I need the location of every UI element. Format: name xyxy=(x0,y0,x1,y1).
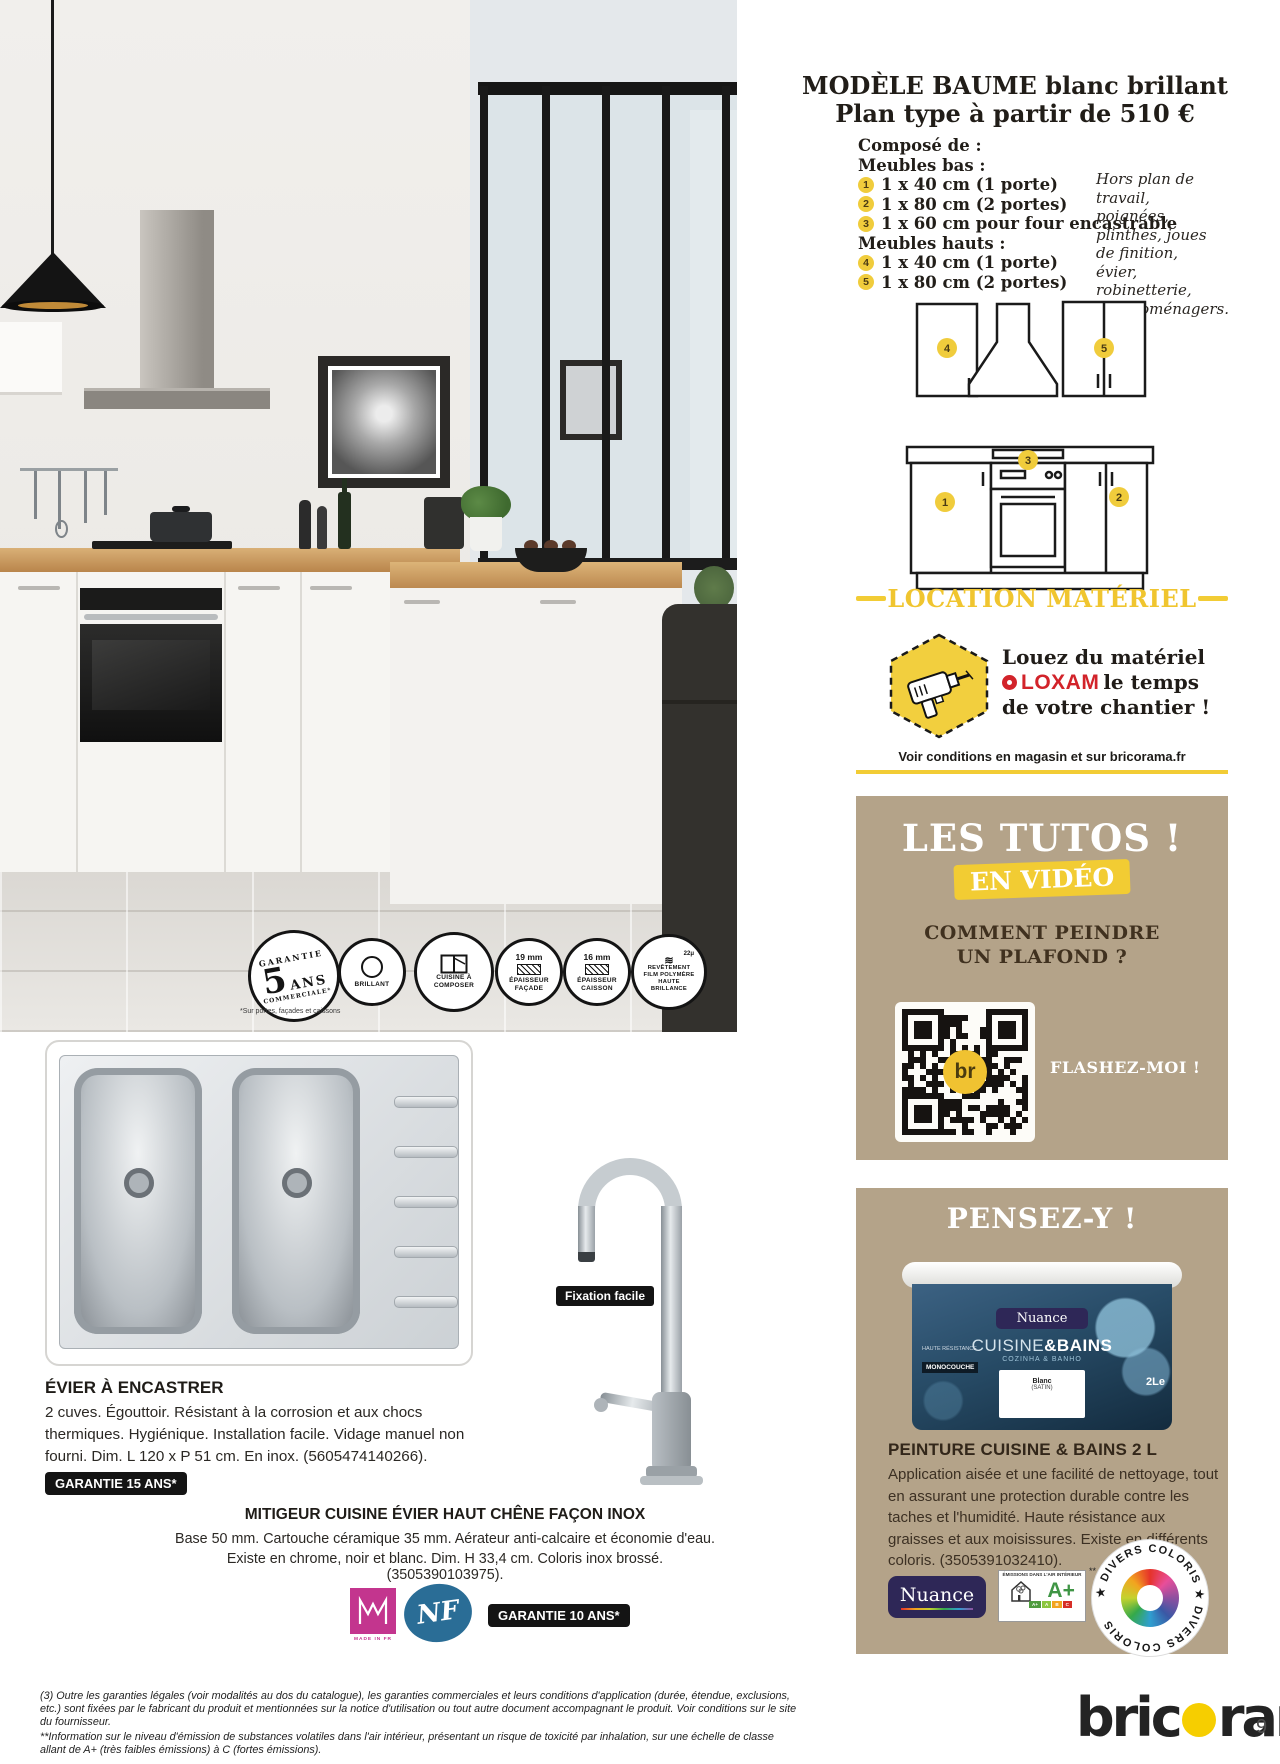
sink-drain xyxy=(282,1168,312,1198)
glass-partition-post xyxy=(542,86,550,568)
catalog-page: GARANTIE 5 ANS COMMERCIALE* BRILLANT CUI… xyxy=(0,0,1280,1764)
pensez-heading: PENSEZ-Y ! xyxy=(856,1202,1228,1235)
badge-revetement-label: REVÊTEMENT FILM POLYMÈRE HAUTE BRILLANCE xyxy=(643,965,695,993)
bucket-volume: 2Le xyxy=(1146,1376,1165,1388)
diagram-number-5: 5 xyxy=(1101,343,1107,355)
loxam-line3: de votre chantier ! xyxy=(1002,695,1232,720)
heading-dash-left xyxy=(856,596,886,601)
item-text: 1 x 40 cm (1 porte) xyxy=(881,253,1058,272)
m-logo-caption: MADE IN FR xyxy=(344,1637,402,1642)
film-layers-icon: ≋ xyxy=(664,957,673,965)
badge-epaisseur-caisson: 16 mm ÉPAISSEUR CAISSON xyxy=(563,938,631,1006)
coffee-machine xyxy=(424,497,464,549)
wall-frame-behind-glass xyxy=(560,360,622,440)
drainboard-rib xyxy=(394,1246,458,1258)
bucket-color-label: Blanc (SATIN) xyxy=(999,1370,1085,1418)
induction-hob xyxy=(92,541,232,549)
thickness-hatch-icon xyxy=(517,964,541,975)
range-hood-canopy xyxy=(84,388,270,409)
badge-facade-label: ÉPAISSEUR FAÇADE xyxy=(507,977,551,993)
badge-revetement: 22μ ≋ REVÊTEMENT FILM POLYMÈRE HAUTE BRI… xyxy=(631,934,707,1010)
aplus-emissions-badge: ÉMISSIONS DANS L'AIR INTÉRIEUR ** A+ A+ … xyxy=(998,1570,1086,1622)
brand-dot xyxy=(1182,1703,1216,1737)
sink-description: 2 cuves. Égouttoir. Résistant à la corro… xyxy=(45,1402,481,1468)
loxam-hexagon xyxy=(884,632,994,740)
cabinet-seam xyxy=(300,572,302,872)
peninsula-handle xyxy=(404,600,440,604)
plant-pot xyxy=(470,517,502,551)
kitchen-plan-diagram: 4 5 3 1 2 xyxy=(905,292,1157,608)
badges-footnote: *Sur portes, façades et caissons xyxy=(240,1008,340,1015)
aplus-header: ÉMISSIONS DANS L'AIR INTÉRIEUR xyxy=(999,1571,1085,1577)
drainboard-rib xyxy=(394,1096,458,1108)
item-number-dot: 4 xyxy=(858,255,874,271)
badge-brillant: BRILLANT xyxy=(338,938,406,1006)
kitchen-photo xyxy=(0,0,737,1032)
stamp-5: 5 xyxy=(260,964,289,998)
sink-title: ÉVIER À ENCASTRER xyxy=(45,1378,224,1398)
page-number: 9 xyxy=(1256,1716,1267,1739)
composed-label: Composé de : xyxy=(858,136,1177,156)
bucket-monocouche-tag: MONOCOUCHE xyxy=(922,1362,978,1373)
legal-note-2: **Information sur le niveau d'émission d… xyxy=(40,1731,798,1757)
brand-pre: bric xyxy=(1076,1686,1180,1749)
faucet-aerator xyxy=(578,1252,595,1262)
scale-c: C xyxy=(1063,1601,1072,1608)
conditions-line: Voir conditions en magasin et sur bricor… xyxy=(856,749,1228,764)
item-text: 1 x 40 cm (1 porte) xyxy=(881,175,1058,194)
faucet-warranty-badge: GARANTIE 10 ANS* xyxy=(488,1604,630,1627)
tutos-question-line2: UN PLAFOND ? xyxy=(856,946,1228,968)
diagram-number-4: 4 xyxy=(944,343,951,355)
sink-tray xyxy=(59,1055,459,1349)
wall-art-photo xyxy=(332,370,436,474)
badge-caisson-label: ÉPAISSEUR CAISSON xyxy=(575,977,619,993)
badge-epaisseur-facade: 19 mm ÉPAISSEUR FAÇADE xyxy=(495,938,563,1006)
scale-a: A xyxy=(1042,1601,1051,1608)
cabinet-handle xyxy=(238,586,280,590)
paint-product-title: PEINTURE CUISINE & BAINS 2 L xyxy=(888,1440,1157,1460)
gloss-ring-icon xyxy=(361,956,383,978)
glass-partition-post xyxy=(662,86,670,568)
faucet-foot xyxy=(640,1476,703,1485)
cabinet-seam xyxy=(224,572,226,872)
bucket-haute-resistance: HAUTE RÉSISTANCE xyxy=(922,1346,992,1352)
diagram-number-1: 1 xyxy=(942,497,948,509)
faucet-title: MITIGEUR CUISINE ÉVIER HAUT CHÊNE FAÇON … xyxy=(185,1506,705,1524)
loxam-line1: Louez du matériel xyxy=(1002,645,1232,670)
model-title-line1: MODÈLE BAUME blanc brillant xyxy=(795,72,1235,100)
model-title: MODÈLE BAUME blanc brillant Plan type à … xyxy=(795,72,1235,128)
pensez-panel: PENSEZ-Y ! Nuance CUISINE&BAINS COZINHA … xyxy=(856,1188,1228,1654)
cabinet-handle xyxy=(18,586,60,590)
glass-partition-post xyxy=(722,86,730,568)
cabinet-seam xyxy=(76,572,78,872)
model-title-line2: Plan type à partir de 510 € xyxy=(795,100,1235,128)
pendant-lamp-glow xyxy=(18,302,88,309)
tutos-panel: LES TUTOS ! EN VIDÉO COMMENT PEINDRE UN … xyxy=(856,796,1228,1160)
fixation-facile-tag: Fixation facile xyxy=(556,1286,654,1306)
tutos-question-line1: COMMENT PEINDRE xyxy=(856,922,1228,944)
hanging-utensil xyxy=(104,471,107,515)
bricorama-logo: bricrama xyxy=(1076,1686,1280,1749)
oven-window xyxy=(92,640,210,710)
pendant-cord xyxy=(51,0,54,254)
aplus-value: A+ xyxy=(1047,1579,1074,1603)
badge-cuisine-label-1: CUISINE À xyxy=(436,974,472,982)
badge-cuisine-a-composer: CUISINE À COMPOSER xyxy=(414,932,494,1012)
tutos-video-tag: EN VIDÉO xyxy=(953,859,1130,900)
item-text: 1 x 80 cm (2 portes) xyxy=(881,195,1067,214)
badge-22u: 22μ xyxy=(684,951,694,957)
loxam-gear-icon xyxy=(1002,675,1017,690)
pepper-mill xyxy=(299,500,311,549)
hanging-spoon-head xyxy=(55,520,68,538)
nuance-rainbow-line xyxy=(901,1608,973,1610)
faucet-spout-arc xyxy=(578,1158,682,1210)
item-number-dot: 2 xyxy=(858,196,874,212)
cabinet-handle xyxy=(310,586,352,590)
divers-circular-text: ★ DIVERS COLORIS ★ DIVERS COLORIS xyxy=(1095,1543,1206,1653)
faucet-description-2: Existe en chrome, noir et blanc. Dim. H … xyxy=(170,1551,720,1583)
bucket-brand: Nuance xyxy=(1017,1311,1068,1326)
item-number-dot: 5 xyxy=(858,274,874,290)
bucket-body: Nuance CUISINE&BAINS COZINHA & BANHO HAU… xyxy=(912,1284,1172,1430)
hanging-utensil xyxy=(84,471,87,523)
sink-photo-card xyxy=(45,1040,473,1366)
bucket-brand-plate: Nuance xyxy=(996,1308,1088,1329)
peninsula-handle xyxy=(540,600,576,604)
tutos-title: LES TUTOS ! xyxy=(856,816,1228,860)
badge-cuisine-label-2: COMPOSER xyxy=(434,982,474,990)
svg-text:★ DIVERS COLORIS ★ DIVERS COLO: ★ DIVERS COLORIS ★ DIVERS COLORIS xyxy=(1095,1543,1206,1653)
badge-19mm: 19 mm xyxy=(516,952,543,962)
thickness-hatch-icon xyxy=(585,964,609,975)
nuance-logo-text: Nuance xyxy=(900,1584,974,1606)
item-number-dot: 1 xyxy=(858,177,874,193)
qr-center-logo: br xyxy=(943,1050,987,1094)
location-heading: LOCATION MATÉRIEL xyxy=(887,584,1196,613)
drainboard-rib xyxy=(394,1196,458,1208)
salt-mill xyxy=(317,506,327,549)
bucket-label-color: Blanc xyxy=(999,1378,1085,1385)
bucket-label-finish: (SATIN) xyxy=(999,1385,1085,1391)
nf-logo: NF xyxy=(400,1580,475,1647)
house-icon xyxy=(1009,1579,1033,1603)
yellow-rule xyxy=(856,770,1228,774)
sink-warranty-badge: GARANTIE 15 ANS* xyxy=(45,1472,187,1495)
paint-bucket: Nuance CUISINE&BAINS COZINHA & BANHO HAU… xyxy=(908,1262,1176,1430)
loxam-offer: Louez du matériel LOXAM le temps de votr… xyxy=(1002,645,1232,720)
wall-art-frame xyxy=(318,356,450,488)
badge-brillant-label: BRILLANT xyxy=(355,981,390,989)
faucet-body xyxy=(652,1392,691,1472)
sink-drain xyxy=(124,1168,154,1198)
peninsula-cabinets xyxy=(390,588,682,904)
nuance-logo: Nuance xyxy=(888,1576,986,1618)
cabinet-icon xyxy=(440,954,468,974)
badge-16mm: 16 mm xyxy=(584,952,611,962)
faucet-spout-drop xyxy=(578,1206,595,1254)
qr-code[interactable]: br xyxy=(895,1002,1035,1142)
m-made-in-france-logo xyxy=(350,1588,396,1634)
nf-logo-text: NF xyxy=(415,1595,461,1631)
location-heading-row: LOCATION MATÉRIEL xyxy=(856,584,1228,613)
diagram-number-2: 2 xyxy=(1116,492,1122,504)
brand-post: rama xyxy=(1218,1686,1280,1749)
loxam-line2-rest: le temps xyxy=(1103,670,1199,695)
diagram-number-3: 3 xyxy=(1025,455,1031,467)
bucket-range-bold: &BAINS xyxy=(1044,1336,1112,1355)
heading-dash-right xyxy=(1198,596,1228,601)
hanging-utensil xyxy=(34,471,37,519)
drainboard-rib xyxy=(394,1146,458,1158)
item-text: 1 x 80 cm (2 portes) xyxy=(881,273,1067,292)
glass-partition-post xyxy=(602,86,610,568)
divers-coloris-badge: ★ DIVERS COLORIS ★ DIVERS COLORIS xyxy=(1092,1540,1208,1656)
wall-cabinet xyxy=(0,322,62,392)
oven-control-panel xyxy=(80,588,222,610)
flashez-moi-label: FLASHEZ-MOI ! xyxy=(1050,1058,1222,1077)
item-number-dot: 3 xyxy=(858,216,874,232)
glass-partition-pane xyxy=(486,95,737,560)
sink-bowl-left xyxy=(74,1068,202,1334)
sofa-seam xyxy=(662,700,737,704)
loxam-brand: LOXAM xyxy=(1021,670,1099,695)
sink-bowl-right xyxy=(232,1068,360,1334)
oven-handle xyxy=(84,614,218,620)
scale-b: B xyxy=(1052,1601,1061,1608)
faucet-lever-knob xyxy=(594,1398,608,1412)
cooking-pot xyxy=(150,512,212,542)
drainboard-rib xyxy=(394,1296,458,1308)
range-hood-chimney xyxy=(140,210,214,388)
faucet-description-1: Base 50 mm. Cartouche céramique 35 mm. A… xyxy=(170,1531,720,1547)
scale-a-plus: A+ xyxy=(1029,1601,1041,1608)
legal-note-1: (3) Outre les garanties légales (voir mo… xyxy=(40,1690,798,1730)
oil-bottle xyxy=(338,492,351,549)
